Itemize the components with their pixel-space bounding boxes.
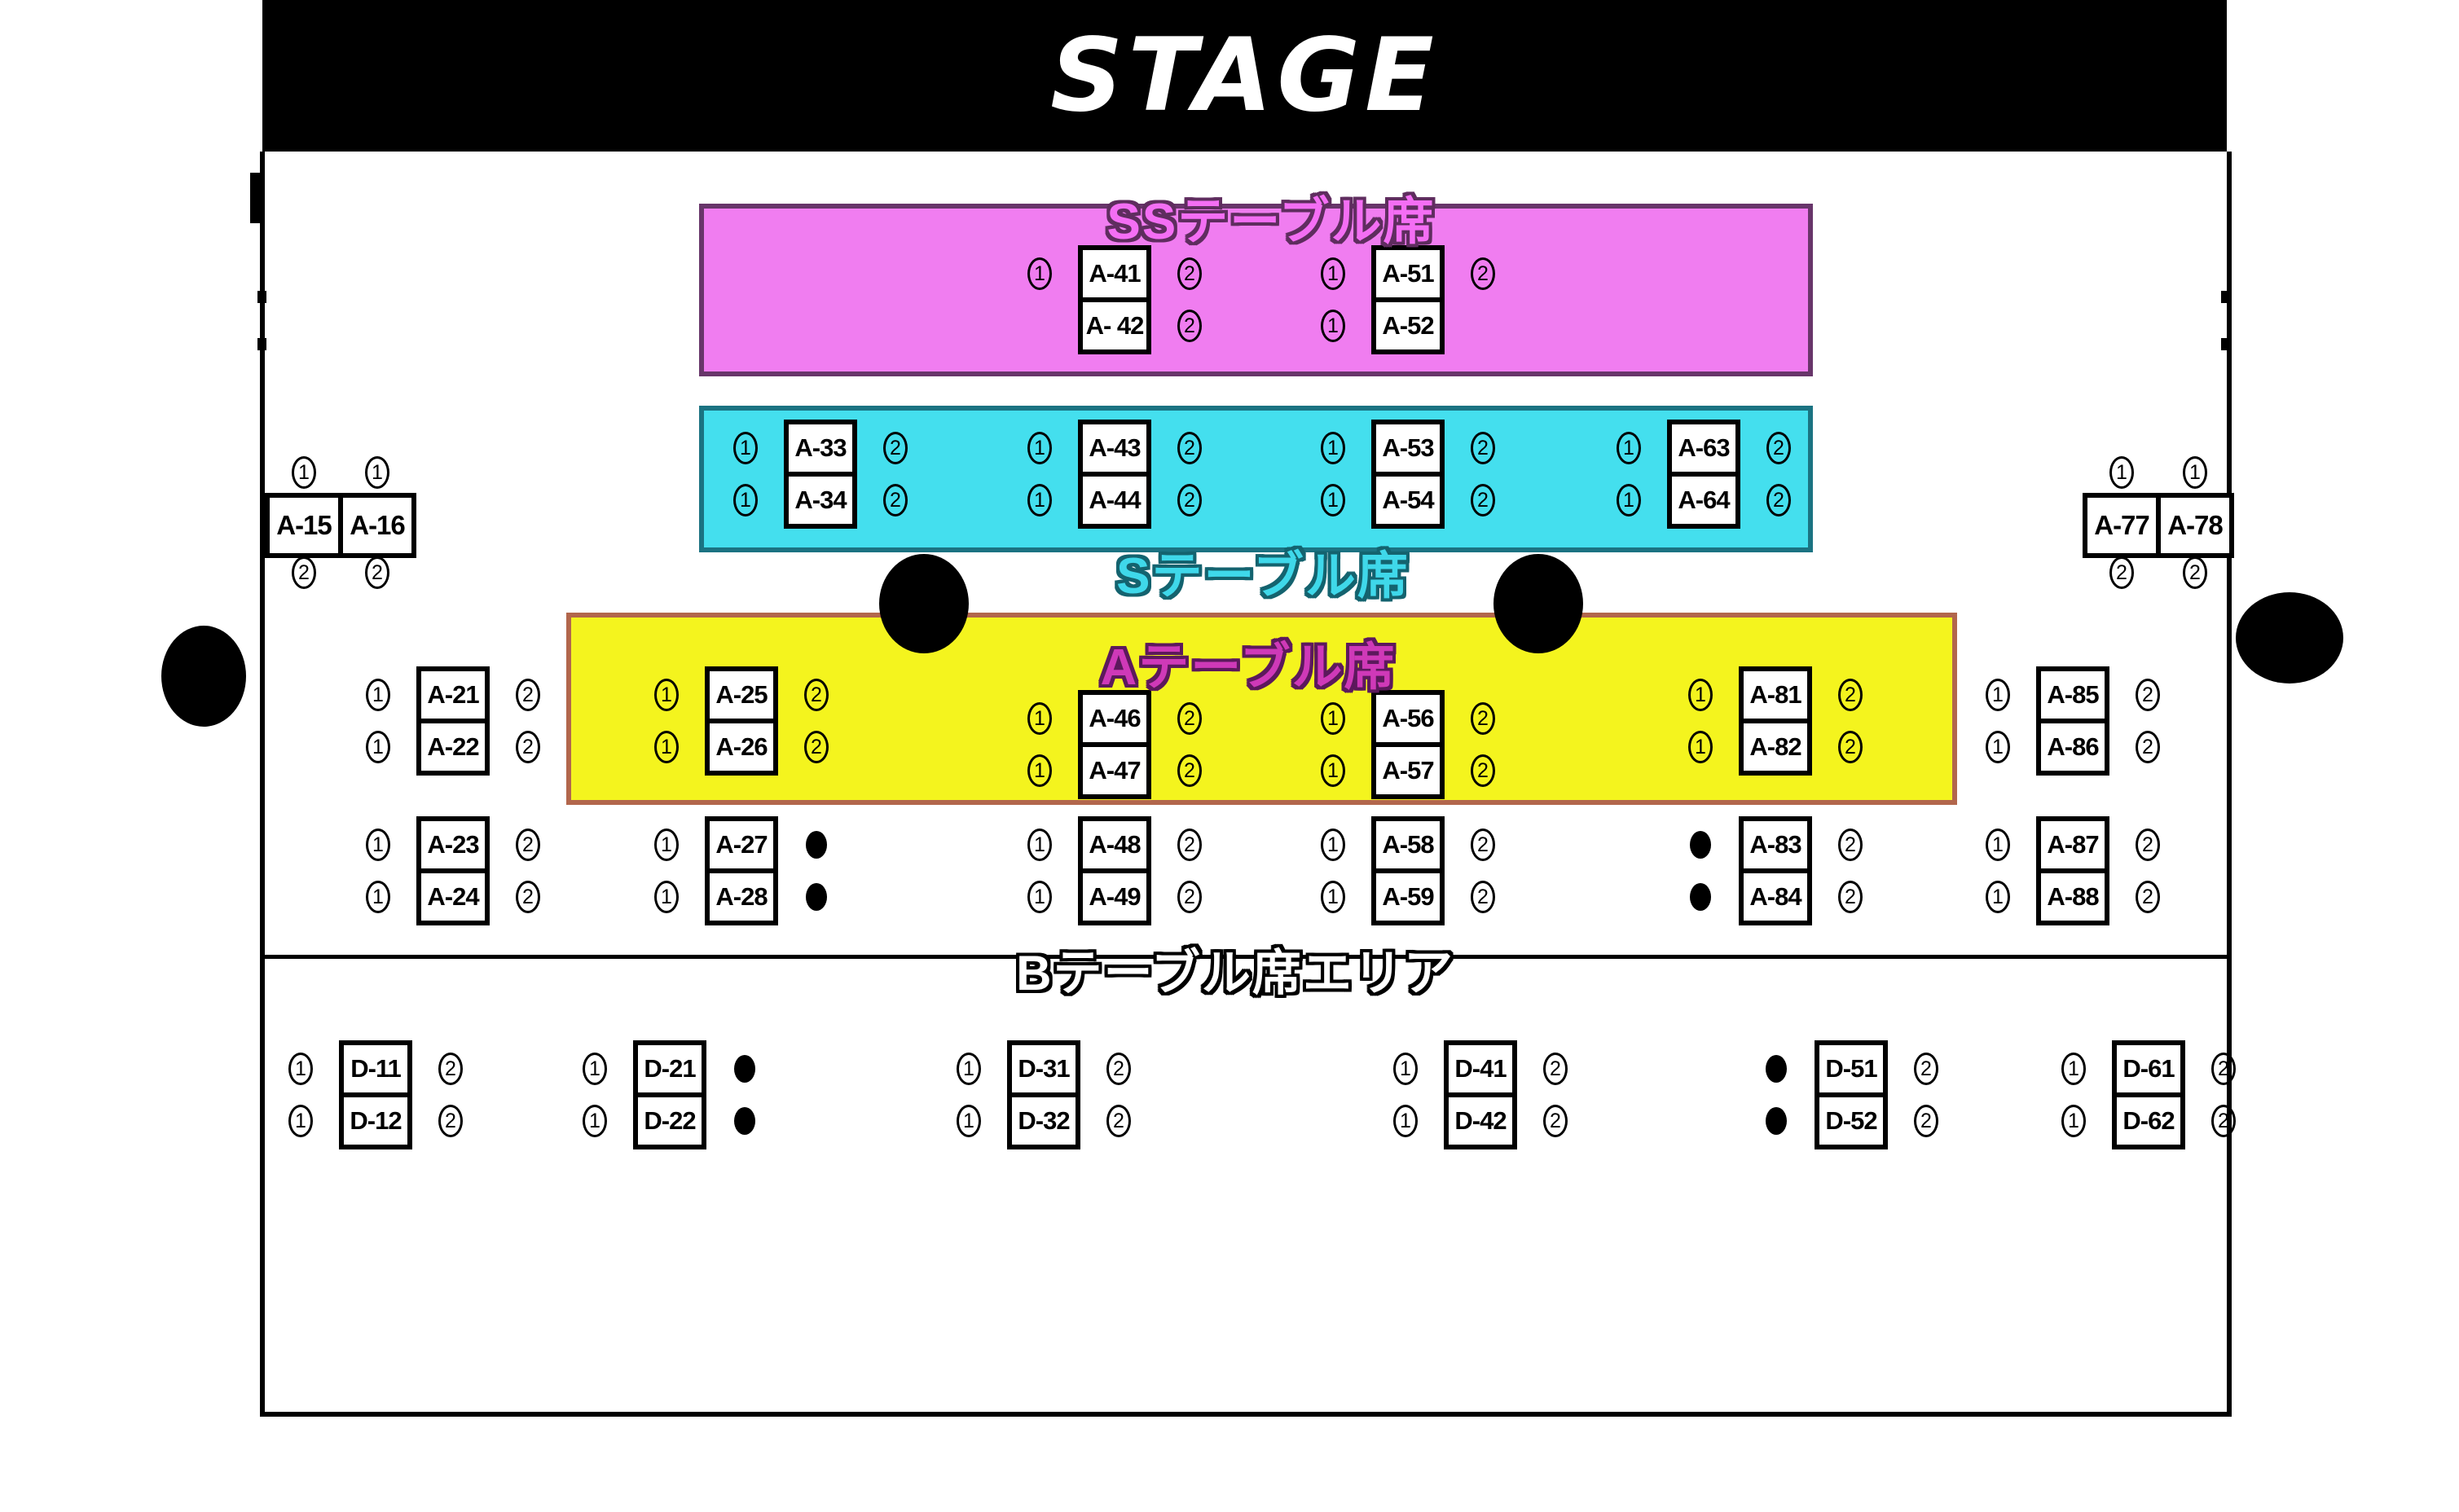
table-group-A-43: A-43A-441212 <box>1078 420 1151 529</box>
seat-1-marker: 1 <box>1321 432 1345 464</box>
seat-1-marker: 1 <box>1617 432 1641 464</box>
section-b-title: Bテーブル席エリア <box>1016 934 1454 1004</box>
table-A-64[interactable]: A-64 <box>1672 472 1735 524</box>
seat-1-marker: 1 <box>1321 257 1345 290</box>
table-stack: A-41A- 42 <box>1078 245 1151 354</box>
seat-2-marker: 2 <box>1766 484 1791 516</box>
table-stack: D-11D-12 <box>339 1040 412 1149</box>
table-A-48[interactable]: A-48 <box>1083 821 1146 868</box>
seat-2-marker: 2 <box>1471 754 1495 787</box>
section-ss-title: SSテーブル席 <box>1107 180 1436 253</box>
seat-1-marker: 1 <box>366 829 390 861</box>
table-A-63[interactable]: A-63 <box>1672 424 1735 472</box>
seat-2-marker: 2 <box>1106 1053 1131 1085</box>
occupied-dot-marker <box>734 1107 755 1135</box>
table-D-21[interactable]: D-21 <box>638 1045 702 1092</box>
seat-1-marker: 1 <box>583 1105 607 1137</box>
table-A-82[interactable]: A-82 <box>1744 719 1807 771</box>
seat-2-marker: 2 <box>2136 829 2160 861</box>
table-stack: A-25A-26 <box>705 666 778 776</box>
seat-1-marker: 1 <box>1688 679 1713 711</box>
seat-1-marker: 1 <box>288 1053 313 1085</box>
seat-1-marker: 1 <box>1393 1105 1418 1137</box>
table-A-84[interactable]: A-84 <box>1744 868 1807 921</box>
seat-2-marker: 2 <box>1471 484 1495 516</box>
table-group-A-56: A-56A-571212 <box>1371 690 1445 799</box>
table-group-A-63: A-63A-641212 <box>1667 420 1740 529</box>
seat-2-marker: 2 <box>883 484 908 516</box>
seat-1-marker: 1 <box>1986 829 2010 861</box>
seat-1-marker: 1 <box>1393 1053 1418 1085</box>
seat-1-marker: 1 <box>1986 679 2010 711</box>
table-A-54[interactable]: A-54 <box>1376 472 1440 524</box>
seat-1-marker: 1 <box>733 484 758 516</box>
table-A-87[interactable]: A-87 <box>2041 821 2105 868</box>
seat-2-marker: 2 <box>1177 484 1202 516</box>
table-A-41[interactable]: A-41 <box>1083 250 1146 297</box>
table-group-D-21: D-21D-2211 <box>633 1040 706 1149</box>
venue-seating-map: STAGE SSテーブル席 Sテーブル席 Aテーブル席 Bテーブル席エリア A-… <box>0 0 2459 1512</box>
seat-1-marker: 1 <box>1027 702 1052 735</box>
table-group-D-61: D-61D-621212 <box>2112 1040 2185 1149</box>
seat-1-marker: 1 <box>2183 456 2207 489</box>
table-A-25[interactable]: A-25 <box>710 671 773 719</box>
table-group-A-81: A-81A-821212 <box>1739 666 1812 776</box>
occupied-dot-marker <box>1766 1107 1787 1135</box>
seat-1-marker: 1 <box>1617 484 1641 516</box>
occupied-dot-marker <box>1766 1055 1787 1083</box>
table-stack: A-23A-24 <box>416 816 490 925</box>
table-stack: A-77A-78 <box>2083 493 2234 558</box>
table-stack: A-53A-54 <box>1371 420 1445 529</box>
table-A-44[interactable]: A-44 <box>1083 472 1146 524</box>
table-stack: A-43A-44 <box>1078 420 1151 529</box>
table-A-57[interactable]: A-57 <box>1376 742 1440 794</box>
table-stack: D-61D-62 <box>2112 1040 2185 1149</box>
seat-1-marker: 1 <box>1027 484 1052 516</box>
table-A-21[interactable]: A-21 <box>421 671 485 719</box>
table-A-81[interactable]: A-81 <box>1744 671 1807 719</box>
table-stack: A-15A-16 <box>265 493 416 558</box>
table-A-59[interactable]: A-59 <box>1376 868 1440 921</box>
table-group-A-83: A-83A-8422 <box>1739 816 1812 925</box>
seat-1-marker: 1 <box>733 432 758 464</box>
seat-1-marker: 1 <box>365 456 389 489</box>
occupied-dot-marker <box>1690 883 1711 911</box>
table-group-A-33: A-33A-341212 <box>784 420 857 529</box>
seat-2-marker: 2 <box>1543 1053 1568 1085</box>
seat-1-marker: 1 <box>1321 484 1345 516</box>
table-group-A-51: A-51A-52121 <box>1371 245 1445 354</box>
table-A-49[interactable]: A-49 <box>1083 868 1146 921</box>
table-A-15[interactable]: A-15 <box>270 498 338 553</box>
table-A-85[interactable]: A-85 <box>2041 671 2105 719</box>
pillar-icon <box>161 626 246 727</box>
seat-2-marker: 2 <box>1914 1105 1938 1137</box>
seat-1-marker: 1 <box>292 456 316 489</box>
table-D-11[interactable]: D-11 <box>344 1045 407 1092</box>
seat-2-marker: 2 <box>2136 731 2160 763</box>
table-stack: A-63A-64 <box>1667 420 1740 529</box>
table-A-22[interactable]: A-22 <box>421 719 485 771</box>
seat-2-marker: 2 <box>516 829 540 861</box>
seat-2-marker: 2 <box>1838 881 1863 913</box>
seat-2-marker: 2 <box>1766 432 1791 464</box>
seat-1-marker: 1 <box>1986 881 2010 913</box>
seat-2-marker: 2 <box>1838 731 1863 763</box>
table-group-A-58: A-58A-591212 <box>1371 816 1445 925</box>
table-A-86[interactable]: A-86 <box>2041 719 2105 771</box>
table-stack: A-85A-86 <box>2036 666 2109 776</box>
table-A-34[interactable]: A-34 <box>789 472 852 524</box>
seat-2-marker: 2 <box>2211 1053 2236 1085</box>
seat-2-marker: 2 <box>1177 829 1202 861</box>
seat-1-marker: 1 <box>583 1053 607 1085</box>
seat-2-marker: 2 <box>1177 310 1202 342</box>
table-D-42[interactable]: D-42 <box>1449 1092 1512 1145</box>
table-A-83[interactable]: A-83 <box>1744 821 1807 868</box>
table-stack: A-58A-59 <box>1371 816 1445 925</box>
section-a-title: Aテーブル席 <box>1100 626 1396 699</box>
table-A-58[interactable]: A-58 <box>1376 821 1440 868</box>
table-stack: A-48A-49 <box>1078 816 1151 925</box>
table-group-A-48: A-48A-491212 <box>1078 816 1151 925</box>
seat-2-marker: 2 <box>1838 679 1863 711</box>
occupied-dot-marker <box>806 831 827 859</box>
seat-1-marker: 1 <box>957 1053 981 1085</box>
section-s-title: Sテーブル席 <box>1116 534 1410 608</box>
seat-1-marker: 1 <box>654 679 679 711</box>
seat-2-marker: 2 <box>1177 881 1202 913</box>
seat-1-marker: 1 <box>366 881 390 913</box>
table-D-62[interactable]: D-62 <box>2117 1092 2180 1145</box>
table-group-D-11: D-11D-121212 <box>339 1040 412 1149</box>
table-D-32[interactable]: D-32 <box>1012 1092 1076 1145</box>
table-group-A-85: A-85A-861212 <box>2036 666 2109 776</box>
seat-2-marker: 2 <box>1471 881 1495 913</box>
table-D-41[interactable]: D-41 <box>1449 1045 1512 1092</box>
seat-2-marker: 2 <box>804 679 829 711</box>
seat-2-marker: 2 <box>1177 702 1202 735</box>
seat-2-marker: 2 <box>1177 257 1202 290</box>
occupied-dot-marker <box>1690 831 1711 859</box>
table-D-61[interactable]: D-61 <box>2117 1045 2180 1092</box>
table-group-D-31: D-31D-321212 <box>1007 1040 1080 1149</box>
seat-1-marker: 1 <box>1986 731 2010 763</box>
table-group-A-21: A-21A-221212 <box>416 666 490 776</box>
seat-2-marker: 2 <box>516 881 540 913</box>
table-stack: D-31D-32 <box>1007 1040 1080 1149</box>
table-A-33[interactable]: A-33 <box>789 424 852 472</box>
table-stack: A-33A-34 <box>784 420 857 529</box>
seat-1-marker: 1 <box>288 1105 313 1137</box>
table-group-D-41: D-41D-421212 <box>1444 1040 1517 1149</box>
table-A-16[interactable]: A-16 <box>338 498 411 553</box>
table-A-23[interactable]: A-23 <box>421 821 485 868</box>
table-A-43[interactable]: A-43 <box>1083 424 1146 472</box>
table-A-52[interactable]: A-52 <box>1376 297 1440 349</box>
table-A-78[interactable]: A-78 <box>2156 498 2229 553</box>
table-A-42[interactable]: A- 42 <box>1083 297 1146 349</box>
table-A-27[interactable]: A-27 <box>710 821 773 868</box>
seat-2-marker: 2 <box>2211 1105 2236 1137</box>
table-group-A-87: A-87A-881212 <box>2036 816 2109 925</box>
table-A-77[interactable]: A-77 <box>2087 498 2156 553</box>
seat-1-marker: 1 <box>1321 881 1345 913</box>
seat-1-marker: 1 <box>1321 702 1345 735</box>
table-stack: A-87A-88 <box>2036 816 2109 925</box>
seat-1-marker: 1 <box>2061 1105 2086 1137</box>
seat-1-marker: 1 <box>1688 731 1713 763</box>
seat-1-marker: 1 <box>366 731 390 763</box>
table-stack: A-51A-52 <box>1371 245 1445 354</box>
seat-2-marker: 2 <box>2136 679 2160 711</box>
table-stack: A-81A-82 <box>1739 666 1812 776</box>
seat-1-marker: 1 <box>1027 432 1052 464</box>
table-group-A-41: A-41A- 42122 <box>1078 245 1151 354</box>
table-stack: D-21D-22 <box>633 1040 706 1149</box>
seat-1-marker: 1 <box>2109 456 2134 489</box>
seat-1-marker: 1 <box>1027 829 1052 861</box>
seat-2-marker: 2 <box>2183 556 2207 589</box>
seat-2-marker: 2 <box>365 556 389 589</box>
seat-2-marker: 2 <box>1471 702 1495 735</box>
seat-1-marker: 1 <box>1027 754 1052 787</box>
seat-1-marker: 1 <box>1321 754 1345 787</box>
seat-1-marker: 1 <box>957 1105 981 1137</box>
seat-2-marker: 2 <box>516 679 540 711</box>
seat-2-marker: 2 <box>1471 257 1495 290</box>
table-stack: A-27A-28 <box>705 816 778 925</box>
pillar-icon <box>2236 592 2343 683</box>
table-stack: D-41D-42 <box>1444 1040 1517 1149</box>
table-stack: A-83A-84 <box>1739 816 1812 925</box>
seat-2-marker: 2 <box>1177 432 1202 464</box>
seat-2-marker: 2 <box>2136 881 2160 913</box>
table-A-26[interactable]: A-26 <box>710 719 773 771</box>
seat-2-marker: 2 <box>438 1105 463 1137</box>
table-D-22[interactable]: D-22 <box>638 1092 702 1145</box>
table-stack: A-46A-47 <box>1078 690 1151 799</box>
table-group-A-15: A-15A-161212 <box>265 493 416 558</box>
occupied-dot-marker <box>806 883 827 911</box>
table-stack: A-56A-57 <box>1371 690 1445 799</box>
table-D-51[interactable]: D-51 <box>1819 1045 1883 1092</box>
seat-2-marker: 2 <box>1471 432 1495 464</box>
seat-1-marker: 1 <box>1027 881 1052 913</box>
seat-2-marker: 2 <box>1177 754 1202 787</box>
seat-2-marker: 2 <box>1106 1105 1131 1137</box>
table-A-56[interactable]: A-56 <box>1376 695 1440 742</box>
seat-2-marker: 2 <box>438 1053 463 1085</box>
seat-1-marker: 1 <box>654 881 679 913</box>
table-stack: D-51D-52 <box>1815 1040 1888 1149</box>
seat-2-marker: 2 <box>1471 829 1495 861</box>
table-stack: A-21A-22 <box>416 666 490 776</box>
pillar-icon <box>1493 554 1583 653</box>
occupied-dot-marker <box>734 1055 755 1083</box>
table-A-88[interactable]: A-88 <box>2041 868 2105 921</box>
table-group-A-77: A-77A-781212 <box>2083 493 2234 558</box>
seat-1-marker: 1 <box>366 679 390 711</box>
seat-1-marker: 1 <box>2061 1053 2086 1085</box>
table-A-46[interactable]: A-46 <box>1083 695 1146 742</box>
table-D-12[interactable]: D-12 <box>344 1092 407 1145</box>
seat-1-marker: 1 <box>654 829 679 861</box>
table-group-A-46: A-46A-471212 <box>1078 690 1151 799</box>
table-A-51[interactable]: A-51 <box>1376 250 1440 297</box>
table-group-D-51: D-51D-5222 <box>1815 1040 1888 1149</box>
seat-2-marker: 2 <box>516 731 540 763</box>
seat-1-marker: 1 <box>1321 829 1345 861</box>
seat-2-marker: 2 <box>1914 1053 1938 1085</box>
table-group-A-27: A-27A-2811 <box>705 816 778 925</box>
table-group-A-23: A-23A-241212 <box>416 816 490 925</box>
seat-1-marker: 1 <box>1027 257 1052 290</box>
seat-1-marker: 1 <box>654 731 679 763</box>
seat-2-marker: 2 <box>883 432 908 464</box>
seat-1-marker: 1 <box>1321 310 1345 342</box>
seat-2-marker: 2 <box>804 731 829 763</box>
table-A-28[interactable]: A-28 <box>710 868 773 921</box>
table-group-A-53: A-53A-541212 <box>1371 420 1445 529</box>
table-A-47[interactable]: A-47 <box>1083 742 1146 794</box>
seat-2-marker: 2 <box>2109 556 2134 589</box>
table-D-31[interactable]: D-31 <box>1012 1045 1076 1092</box>
table-A-53[interactable]: A-53 <box>1376 424 1440 472</box>
table-A-24[interactable]: A-24 <box>421 868 485 921</box>
seat-2-marker: 2 <box>292 556 316 589</box>
seat-2-marker: 2 <box>1838 829 1863 861</box>
table-D-52[interactable]: D-52 <box>1819 1092 1883 1145</box>
table-group-A-25: A-25A-261212 <box>705 666 778 776</box>
pillar-icon <box>879 554 969 653</box>
seat-2-marker: 2 <box>1543 1105 1568 1137</box>
